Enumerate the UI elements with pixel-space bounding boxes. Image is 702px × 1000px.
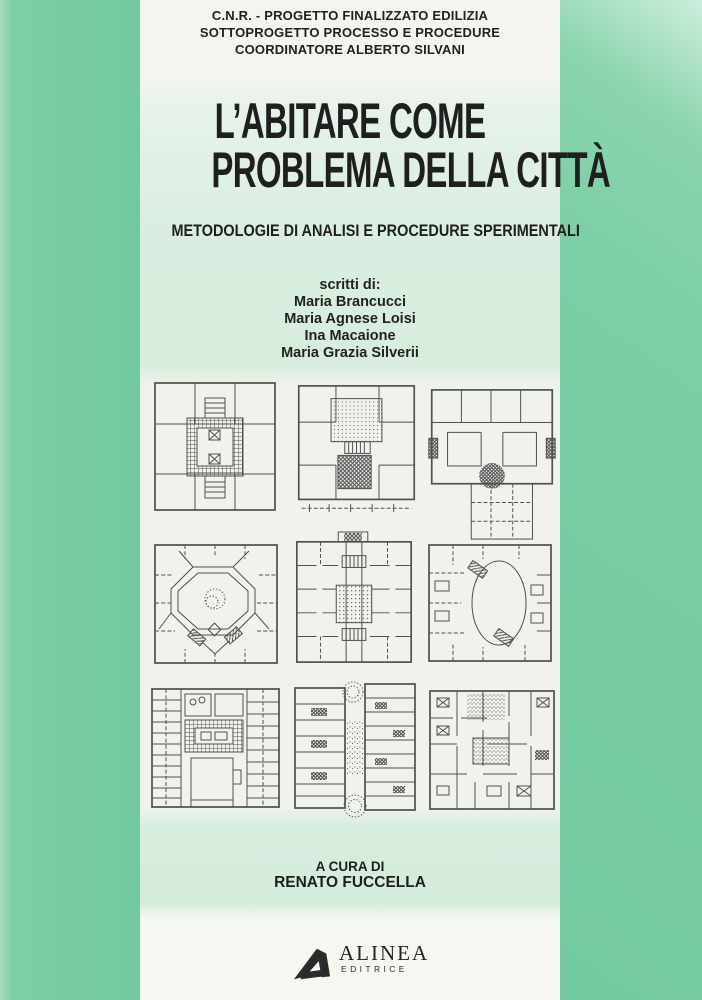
publisher-name: ALINEA	[339, 942, 429, 964]
author-name: Maria Brancucci	[140, 294, 560, 311]
cover-center-strip: C.N.R. - PROGETTO FINALIZZATO EDILIZIA S…	[140, 0, 560, 1000]
floor-plan-row2-col1	[150, 541, 282, 667]
alinea-a-logo-icon	[294, 947, 332, 981]
floor-plan-row3-col1	[148, 684, 283, 812]
editor-credit-label: A CURA DI	[140, 859, 560, 875]
title-line-2: PROBLEMA DELLA CITTÀ	[211, 146, 488, 195]
floor-plan-row1-col1	[150, 376, 280, 518]
header-line-1: C.N.R. - PROGETTO FINALIZZATO EDILIZIA	[140, 7, 560, 24]
cover-left-green-band	[0, 0, 140, 1000]
authors-list: scritti di: Maria Brancucci Maria Agnese…	[140, 277, 560, 362]
floor-plans-grid	[140, 372, 560, 820]
publisher-name-block: ALINEA EDITRICE	[339, 942, 429, 974]
publisher-tagline: EDITRICE	[341, 964, 429, 974]
floor-plan-row2-col2	[290, 530, 418, 670]
author-name: Ina Macaione	[140, 328, 560, 345]
floor-plan-row1-col2	[293, 381, 420, 518]
title-line-1: L’ABITARE COME	[211, 97, 488, 146]
publisher-logo-block: ALINEA EDITRICE	[294, 942, 429, 981]
editor-name: RENATO FUCCELLA	[140, 875, 560, 891]
authors-label: scritti di:	[140, 277, 560, 294]
floor-plan-row1-col3	[427, 383, 557, 543]
book-title: L’ABITARE COME PROBLEMA DELLA CITTÀ	[211, 97, 488, 195]
book-subtitle: METODOLOGIE DI ANALISI E PROCEDURE SPERI…	[172, 221, 529, 241]
header-line-2: SOTTOPROGETTO PROCESSO E PROCEDURE	[140, 24, 560, 41]
header-line-3: COORDINATORE ALBERTO SILVANI	[140, 41, 560, 58]
author-name: Maria Grazia Silverii	[140, 345, 560, 362]
cnr-project-header: C.N.R. - PROGETTO FINALIZZATO EDILIZIA S…	[140, 7, 560, 58]
book-cover: C.N.R. - PROGETTO FINALIZZATO EDILIZIA S…	[0, 0, 702, 1000]
floor-plan-row3-col2	[290, 676, 420, 818]
floor-plan-row3-col3	[426, 686, 558, 814]
floor-plan-row2-col3	[424, 541, 556, 665]
editor-credit: A CURA DI RENATO FUCCELLA	[140, 859, 560, 891]
author-name: Maria Agnese Loisi	[140, 311, 560, 328]
